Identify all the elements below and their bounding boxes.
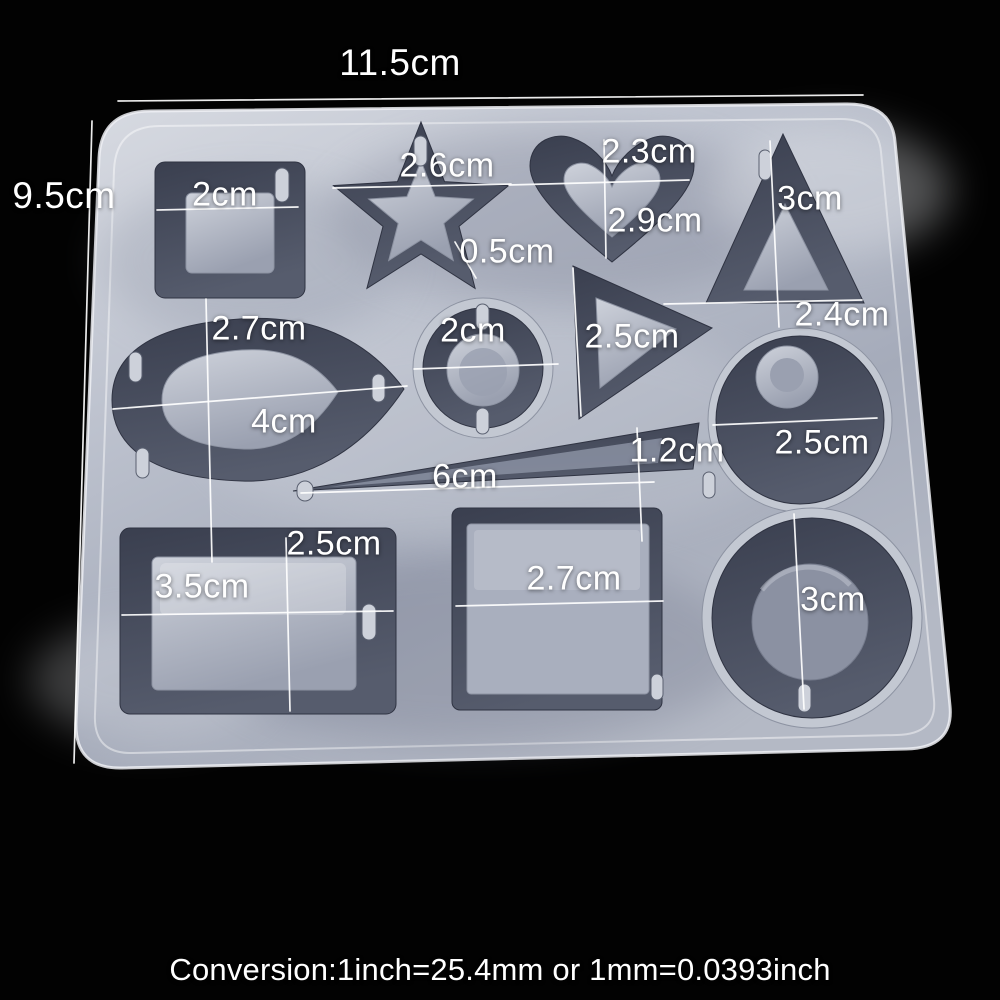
cavity-circle-right <box>708 328 892 512</box>
dim-label-circle-small: 2cm <box>440 312 506 351</box>
dim-label-spike-length: 6cm <box>432 458 498 497</box>
dim-label-teardrop-width: 2.7cm <box>211 310 306 349</box>
dim-label-rectangle-width: 3.5cm <box>154 568 249 607</box>
dim-label-star-ring: 0.5cm <box>459 233 554 272</box>
cavity-square-large <box>452 508 662 710</box>
dim-label-triangle-small: 2.5cm <box>584 318 679 357</box>
dim-label-overall-height: 9.5cm <box>12 175 115 217</box>
dim-label-triangle-width: 2.4cm <box>794 296 889 335</box>
dim-label-star-width: 2.6cm <box>399 147 494 186</box>
dim-label-square-width: 2cm <box>192 176 258 215</box>
dim-label-spike-width: 1.2cm <box>629 432 724 471</box>
mold-illustration <box>0 0 1000 1000</box>
dim-label-overall-width: 11.5cm <box>339 42 461 84</box>
dim-label-circle-large: 3cm <box>800 581 866 620</box>
product-photo: 11.5cm 9.5cm 2cm 2.6cm 0.5cm 2.3cm 2.9cm… <box>0 0 1000 1000</box>
dim-label-rectangle-height: 2.5cm <box>286 525 381 564</box>
conversion-note: Conversion:1inch=25.4mm or 1mm=0.0393inc… <box>169 952 830 988</box>
dim-label-square-large: 2.7cm <box>526 560 621 599</box>
dim-label-triangle-height: 3cm <box>777 180 843 219</box>
dim-label-teardrop-length: 4cm <box>251 403 317 442</box>
dim-label-circle-right: 2.5cm <box>774 424 869 463</box>
dim-label-heart-height: 2.9cm <box>607 202 702 241</box>
dim-label-heart-width: 2.3cm <box>601 133 696 172</box>
